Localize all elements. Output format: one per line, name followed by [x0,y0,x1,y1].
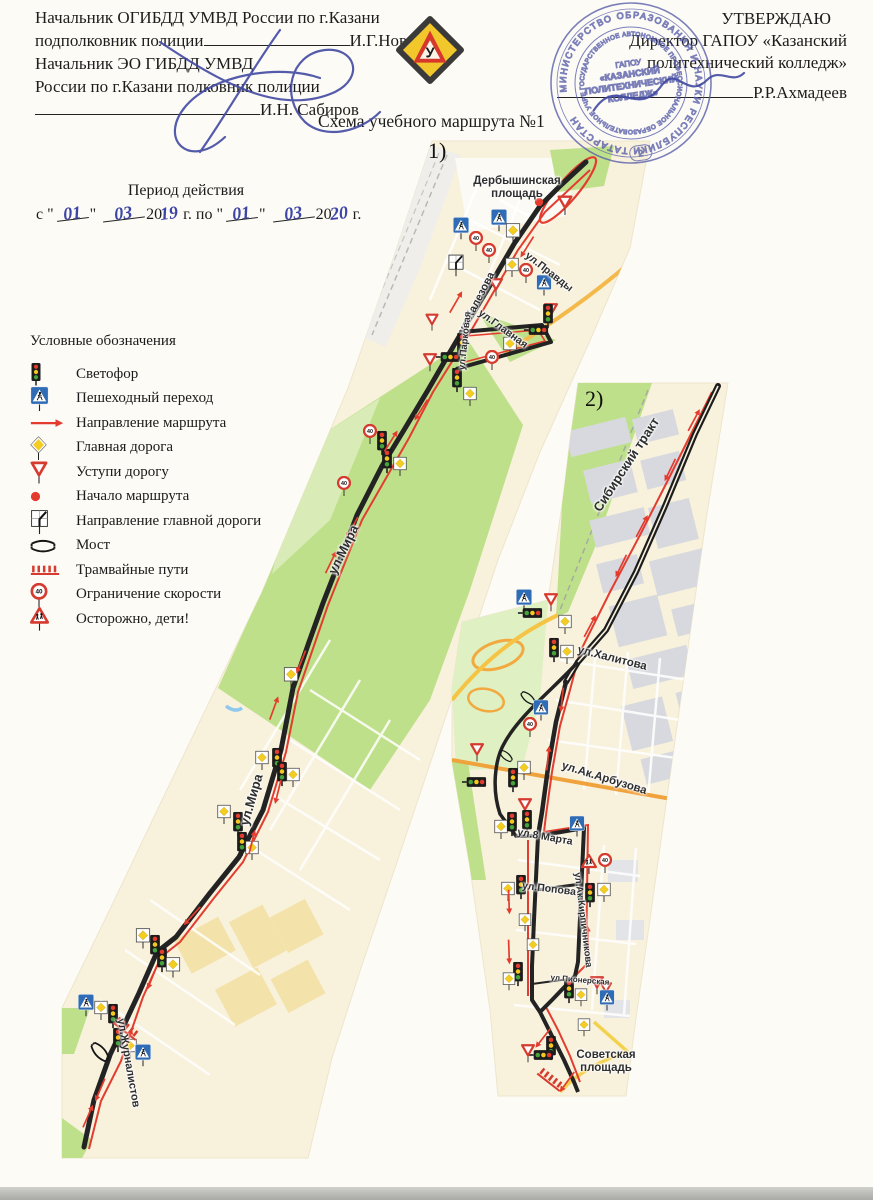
legend-item-label: Осторожно, дети! [76,611,189,628]
period-caption: Период действия [30,182,342,200]
legend-item: Начало маршрута [30,485,305,510]
legend-item-label: Направление маршрута [76,415,226,432]
period-line: с "01" 032019 г. по "01" 032020 г. [36,203,361,224]
right-signature [582,55,752,130]
period-text: г. [353,206,362,223]
legend-item-label: Главная дорога [76,439,173,456]
period-day1: 01 [55,201,89,222]
period-year2: 20 [328,202,348,225]
legend-item-label: Трамвайные пути [76,562,188,579]
map1-number: 1) [428,138,446,164]
main-road-icon [31,436,47,459]
period-text: " [90,206,97,223]
map2-number: 2) [585,386,603,412]
legend-item: Направление маршрута [30,411,305,436]
route-start-icon [31,492,40,501]
legend-item-label: Мост [76,537,110,554]
speed-limit-icon [32,584,46,607]
legend-item: Светофор [30,362,305,387]
yield-icon [32,463,46,484]
main-road-direction-icon [32,510,48,534]
period-text: г. по " [183,206,223,223]
period-text: с " [36,206,54,223]
period-month1: 03 [101,201,145,223]
children-icon [31,609,48,632]
scan-edge-shadow [0,1187,873,1200]
period-year1: 19 [159,202,179,225]
traffic-light-icon [32,363,41,386]
legend-item: Трамвайные пути [30,558,305,583]
legend-item-label: Уступи дорогу [76,464,169,481]
tram-tracks-icon [31,566,59,574]
legend-item-label: Светофор [76,366,138,383]
legend-title: Условные обозначения [30,333,305,350]
director-name: Р.Р.Ахмадеев [753,83,847,102]
legend-item: Уступи дорогу [30,460,305,485]
bridge-icon [32,540,55,551]
pedestrian-crossing-icon [31,387,48,412]
legend-item: Пешеходный переход [30,387,305,412]
legend-item-label: Направление главной дороги [76,513,261,530]
left-signature [130,22,400,172]
period-text: " [259,206,266,223]
legend-item: Мост [30,534,305,559]
scanned-route-scheme-page: 40 [0,0,873,1200]
driving-school-emblem-icon: У [396,16,464,84]
period-day2: 01 [224,201,258,222]
legend-item-label: Начало маршрута [76,488,189,505]
emblem-letter: У [425,45,435,61]
period-month2: 03 [271,201,315,223]
legend-item-label: Пешеходный переход [76,390,213,407]
legend-item-label: Ограничение скорости [76,586,221,603]
legend-item: Главная дорога [30,436,305,461]
legend: Условные обозначения СветофорПешеходный … [30,333,305,632]
legend-item: Осторожно, дети! [30,607,305,632]
route-direction-icon [31,419,63,427]
legend-item: Направление главной дороги [30,509,305,534]
dot-icon [535,198,543,206]
legend-item: Ограничение скорости [30,583,305,608]
